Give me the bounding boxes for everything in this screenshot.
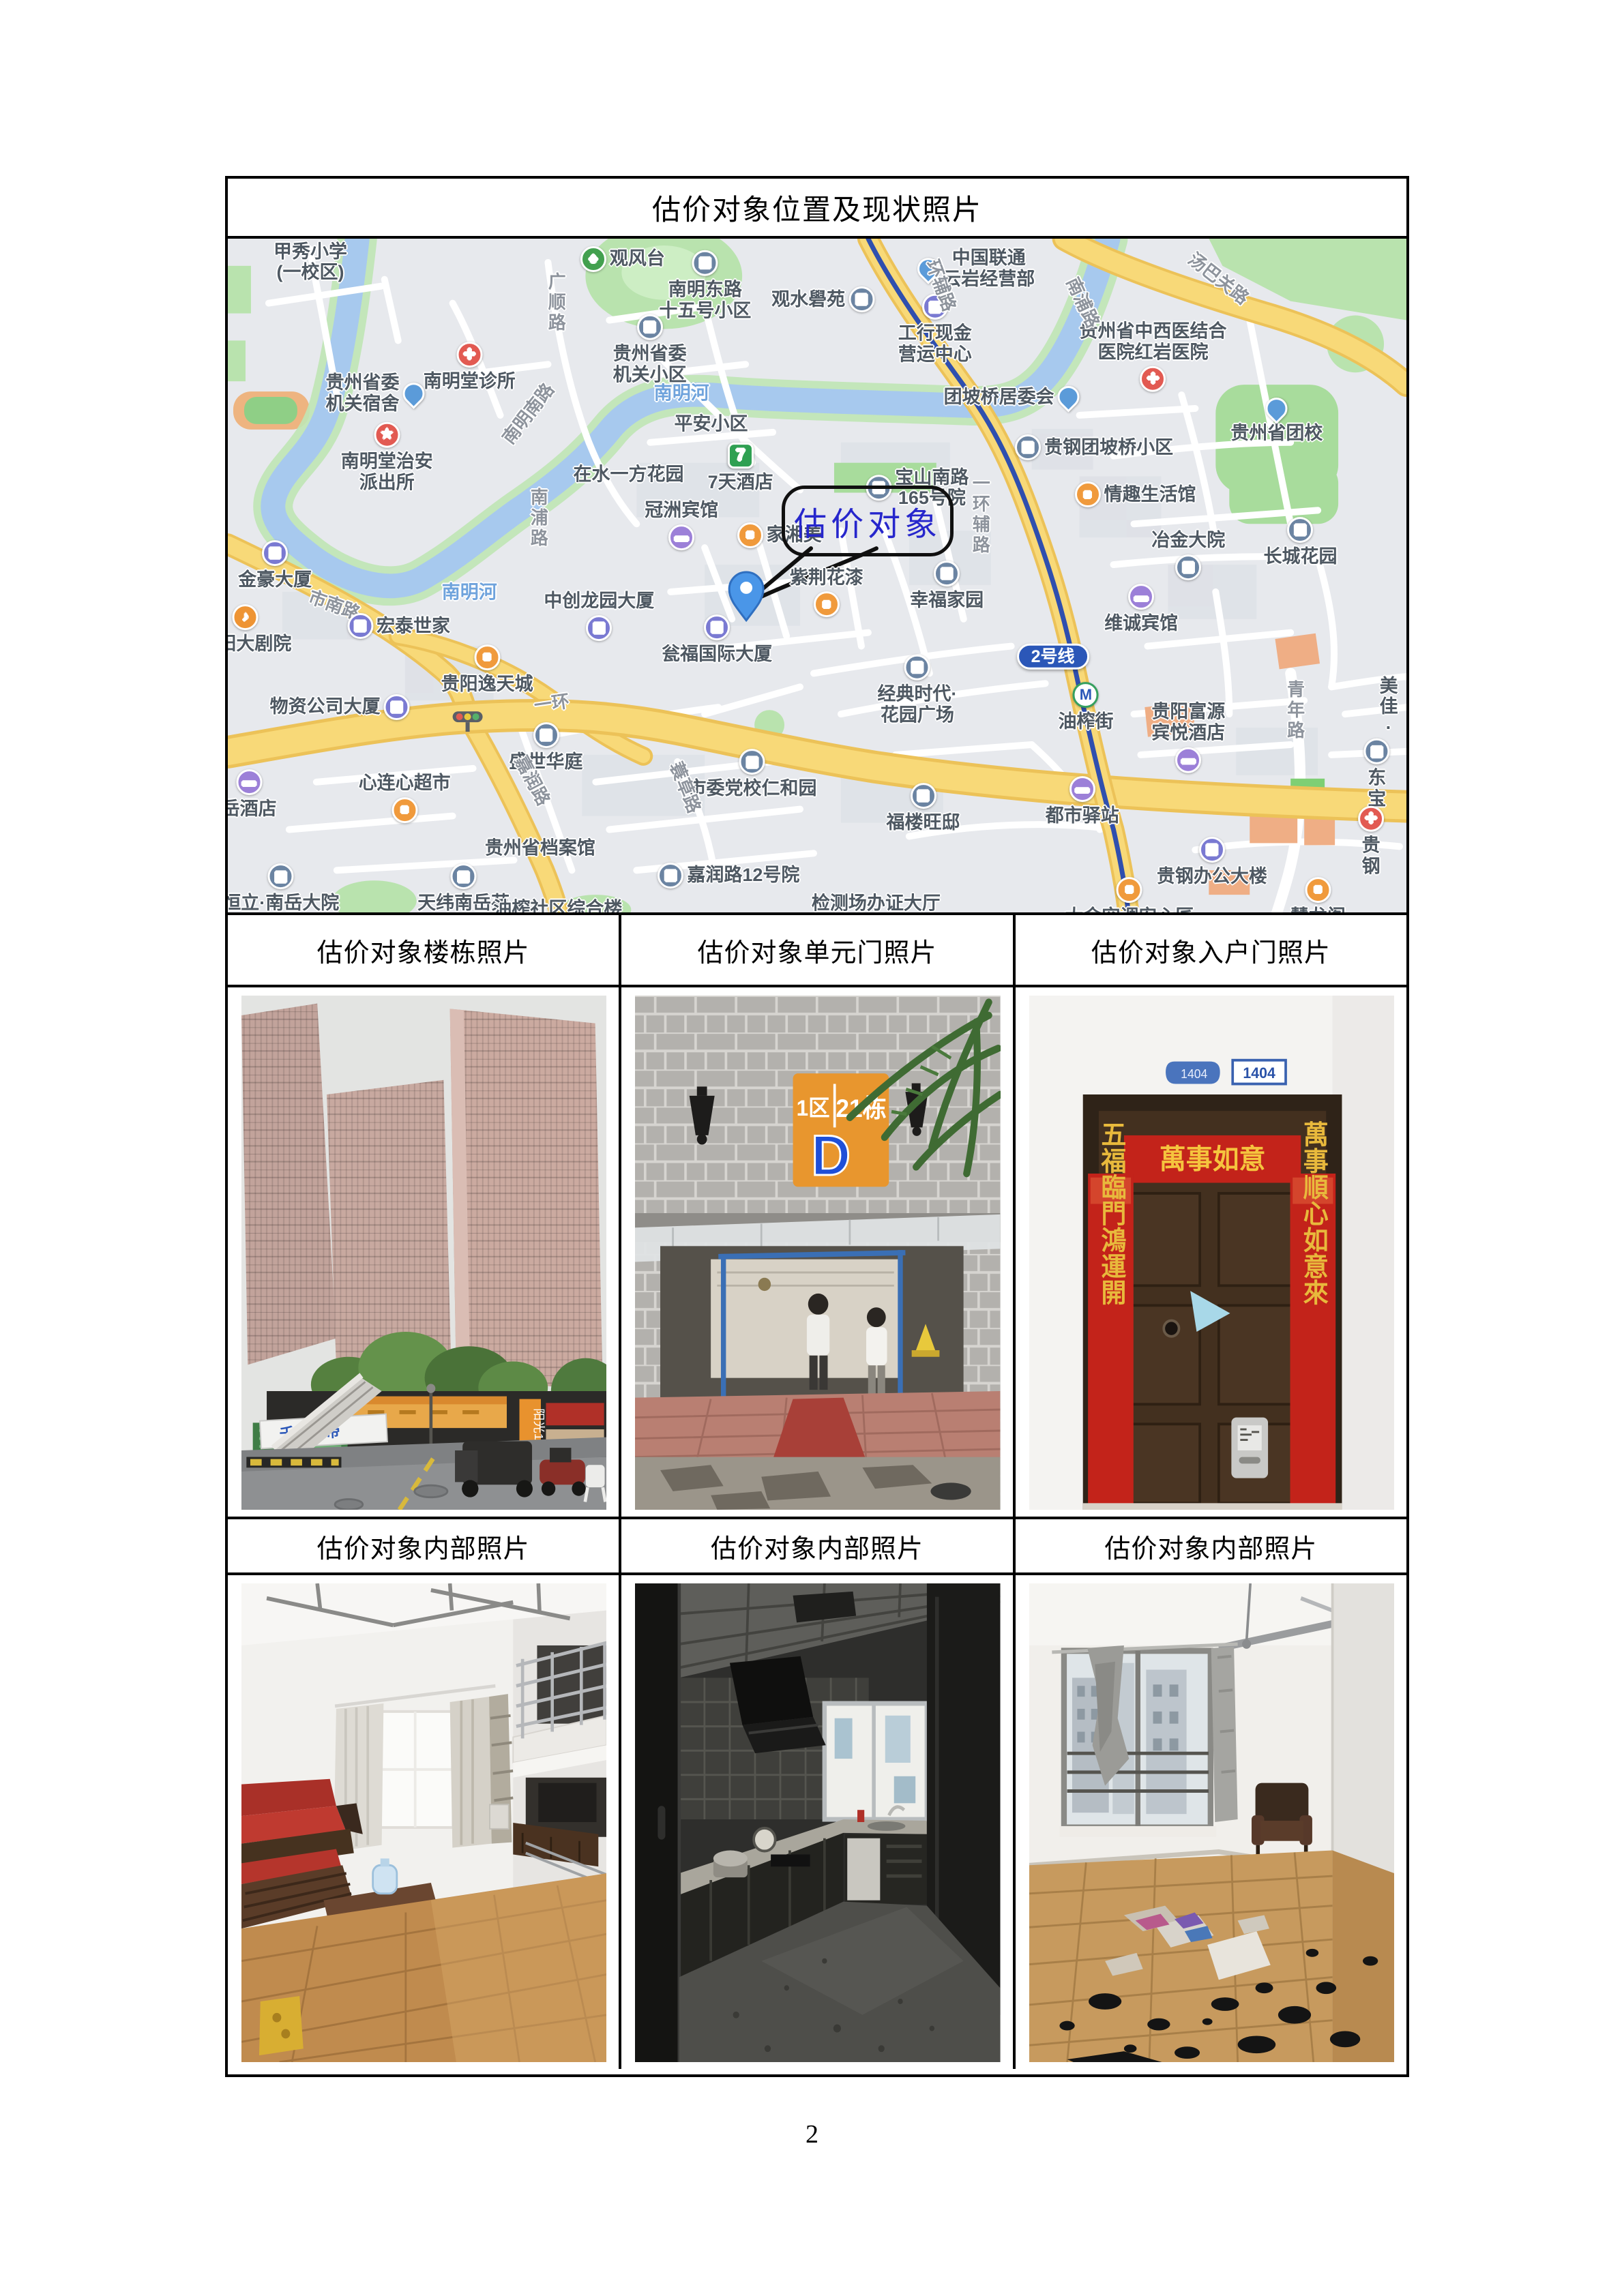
map-label-text: 南浦路 — [1062, 274, 1103, 331]
map-label: 南明河 — [654, 383, 709, 404]
target-callout-text: 估价对象 — [794, 497, 941, 545]
building-icon: ▦ — [1175, 554, 1201, 580]
target-callout: 估价对象 — [782, 486, 954, 557]
map-label-text: 南明堂治安 派出所 — [341, 451, 433, 494]
pin-icon — [1261, 393, 1292, 423]
map-label: 贵州省委 机关宿舍 — [326, 372, 425, 415]
map-label: 贵阳富源 宾悦酒店▬ — [1151, 702, 1225, 773]
couplet-left-text: 五福臨門鴻運開 — [1097, 1121, 1127, 1306]
building-icon: ▦ — [451, 864, 477, 890]
kitchen-window — [825, 1703, 927, 1819]
map-label-text: 南浦路 — [528, 488, 548, 549]
map-label: 紫荆花漆■ — [790, 567, 863, 618]
map-label-text: 恒立·南岳大院 — [228, 893, 339, 912]
map-label-text: 维诚宾馆 — [1104, 614, 1178, 635]
building-icon: ▦ — [1364, 739, 1390, 764]
map-label: ▦东宝 — [1362, 739, 1391, 810]
heater — [490, 1804, 509, 1829]
map-label: 观水礐苑▦ — [771, 286, 874, 312]
caption-interior-photo-1: 估价对象内部照片 — [228, 1519, 621, 1572]
map-label: ▦工行现金 营运中心 — [898, 294, 972, 366]
map-label-text: 工行现金 营运中心 — [898, 323, 972, 366]
hotel-icon: ▬ — [668, 524, 694, 550]
map-label-text: 大金空调安心匠 — [1065, 906, 1194, 912]
interior-photo-kitchen — [635, 1583, 1000, 2062]
shop-icon: ■ — [1075, 481, 1101, 507]
office-icon: ▦ — [704, 614, 730, 640]
plaque-right-number: 1404 — [1243, 1064, 1275, 1082]
map-label-text: 情趣生活馆 — [1104, 484, 1196, 505]
photo-cell-entry-door: 1404 1404 萬事如意 — [1016, 987, 1406, 1517]
photo-cell-interior-1 — [228, 1575, 621, 2069]
map-label: ▦南明东路 十五号小区 — [659, 250, 751, 322]
map-label: ▦恒立·南岳大院 — [228, 864, 339, 912]
interior-photo-living — [241, 1583, 606, 2062]
caption-entry-door-photo: 估价对象入户门照片 — [1016, 915, 1406, 985]
hotel-icon: ▬ — [236, 769, 262, 795]
map-label-text: 中创龙园大厦 — [544, 591, 654, 612]
map-label: 冠洲宾馆▬ — [645, 500, 718, 550]
map-label-text: 嘉润路12号院 — [687, 865, 799, 886]
map-label-text: 冶金大院 — [1151, 530, 1225, 551]
map-label: ▦幸福家园 — [910, 561, 984, 611]
photo-row-2 — [228, 1575, 1406, 2069]
building-icon: ▦ — [848, 286, 874, 312]
metro-icon: M — [1073, 682, 1099, 708]
map-label: 广顺路 — [546, 272, 566, 333]
police-icon: ★ — [374, 422, 400, 448]
map-label-text: 贵阳大剧院 — [228, 633, 291, 655]
map-label: +贵钢 — [1353, 806, 1389, 878]
map-label: ▦宏泰世家 — [347, 613, 450, 639]
map-label: 一环 — [533, 691, 571, 716]
caption-row-2: 估价对象内部照片 估价对象内部照片 估价对象内部照片 — [228, 1519, 1406, 1575]
map-label: 青年路 — [1284, 680, 1305, 741]
cart-icon: ■ — [392, 797, 417, 823]
plaque-zone-text: 1区 — [797, 1095, 830, 1120]
map-label-text: 甲秀小学 (一校区) — [274, 241, 347, 284]
map-label-text: 一环 — [533, 691, 571, 716]
shop-icon: ■ — [1305, 877, 1331, 903]
photo-table: 估价对象位置及现状照片 — [225, 176, 1409, 2077]
water-jug — [373, 1865, 397, 1894]
map-label: 南浦路 — [1062, 274, 1103, 331]
map-label-text: 美佳· — [1380, 676, 1398, 739]
page-title: 估价对象位置及现状照片 — [652, 187, 982, 228]
map-label-text: 贵钢 — [1353, 835, 1389, 878]
map-label: 心连心超市■ — [359, 773, 451, 823]
map-label-text: 贵州省委 机关小区 — [613, 344, 687, 386]
map-label: ▬都市驿站 — [1046, 776, 1119, 826]
map-label: 美佳· — [1380, 676, 1398, 739]
seven-icon: 7 — [728, 443, 754, 468]
caption-building-photo: 估价对象楼栋照片 — [228, 915, 621, 985]
map-label-text: 观风台 — [610, 248, 665, 269]
map-label-text: 瓮福国际大厦 — [662, 644, 772, 665]
map-label-text: 金豪大厦 — [238, 569, 312, 591]
map-label-text: 中国联通 云岩经营部 — [943, 248, 1035, 290]
map-label: ▦长城花园 — [1263, 517, 1337, 567]
map-label-text: 平安小区 — [674, 413, 748, 434]
map-label-text: 经典时代· 花园广场 — [877, 684, 957, 726]
map-label-text: 贵州省中西医结合 医院红岩医院 — [1079, 321, 1226, 363]
map-label: ▦瓮福国际大厦 — [662, 614, 772, 665]
office-icon: ▦ — [384, 694, 410, 720]
map-label: ■大金空调安心匠 — [1065, 877, 1194, 912]
caption-interior-photo-3: 估价对象内部照片 — [1016, 1519, 1406, 1572]
map-label-text: 检测场办证大厅 — [812, 893, 941, 912]
map-label-text: 贵州省团校 — [1230, 423, 1323, 444]
caption-row-1: 估价对象楼栋照片 估价对象单元门照片 估价对象入户门照片 — [228, 915, 1406, 987]
building-icon: ▦ — [904, 655, 930, 681]
building-icon: ▦ — [739, 749, 765, 775]
hotel-icon: ▬ — [1128, 584, 1154, 610]
map-label: 一环辅路 — [970, 474, 990, 556]
map-label-text: 贵阳富源 宾悦酒店 — [1151, 702, 1225, 744]
map-label: 汤巴关路 — [1183, 250, 1252, 309]
caption-unit-door-photo: 估价对象单元门照片 — [621, 915, 1015, 985]
door-lock — [1231, 1418, 1268, 1478]
office-icon: ▦ — [586, 615, 612, 641]
map-label: ▦贵钢团坡桥小区 — [1015, 434, 1173, 460]
map-label-text: 油榨街 — [1058, 711, 1113, 732]
map-label-text: 冠洲宾馆 — [645, 500, 718, 521]
map-label: ■贵阳逸天城 — [441, 644, 533, 695]
map-label-text: 东宝 — [1362, 768, 1391, 810]
map-label: 在水一方花园 — [574, 464, 684, 485]
map-label-text: 油榨社区综合楼 — [493, 899, 622, 912]
office-icon: ▦ — [347, 613, 373, 639]
map-label: 中创龙园大厦▦ — [544, 591, 654, 641]
yellow-stool — [259, 1996, 304, 2055]
map-label: 南浦路 — [528, 488, 548, 549]
page-number: 2 — [0, 2119, 1624, 2149]
map-label: ▦嘉润路12号院 — [658, 863, 799, 889]
photo-cell-interior-3 — [1016, 1575, 1406, 2069]
building-icon: ▦ — [268, 864, 294, 890]
map-label-text: 物资公司大厦 — [270, 696, 381, 717]
photo-cell-unit-door: 1区 21栋 D — [621, 987, 1015, 1517]
hospital-icon: + — [1358, 806, 1384, 832]
building-photo: 阳光100幼儿园 千兆宽带 — [241, 996, 606, 1510]
map-label-text: 贵钢团坡桥小区 — [1044, 437, 1173, 458]
map-label-text: 市委党校仁和园 — [688, 779, 816, 800]
building-icon: ▦ — [658, 863, 683, 889]
map-label-text: 贵州省档案馆 — [485, 838, 595, 859]
unit-door-photo: 1区 21栋 D — [635, 996, 1000, 1510]
room-window — [1059, 1651, 1216, 1837]
photo-row-1: 阳光100幼儿园 千兆宽带 — [228, 987, 1406, 1519]
building-icon: ▦ — [637, 314, 663, 340]
shop-icon: ■ — [1117, 877, 1142, 903]
plaque-left-number: 1404 — [1181, 1067, 1207, 1080]
map-label-text: 南明河 — [654, 383, 709, 404]
map-label: 77天酒店 — [708, 443, 773, 493]
map-label: ▦贵州省委 机关小区 — [613, 314, 687, 386]
plaque-unit-text: D — [812, 1124, 851, 1187]
map-label: 团坡桥居委会 — [944, 386, 1080, 408]
map-label: 贵州省中西医结合 医院红岩医院+ — [1079, 321, 1226, 393]
map-label-text: 福楼旺邸 — [887, 812, 960, 833]
map-label-text: 青年路 — [1284, 680, 1305, 741]
entry-door-photo: 1404 1404 萬事如意 — [1029, 996, 1394, 1510]
map-label: M油榨街 — [1058, 682, 1113, 732]
map-label-text: 南明堂诊所 — [424, 371, 516, 392]
location-map: 甲秀小学 (一校区)广顺路▦南明东路 十五号小区♣观风台观水礐苑▦中国联通 云岩… — [228, 239, 1406, 912]
map-row: 甲秀小学 (一校区)广顺路▦南明东路 十五号小区♣观风台观水礐苑▦中国联通 云岩… — [228, 239, 1406, 915]
peephole — [1164, 1321, 1179, 1337]
couplet-right-text: 萬事順心如意來 — [1299, 1121, 1328, 1306]
map-label-text: 紫荆花漆 — [790, 567, 863, 588]
table-title-row: 估价对象位置及现状照片 — [228, 179, 1406, 239]
map-label: ▬岳酒店 — [228, 769, 277, 820]
map-label-text: 7天酒店 — [708, 472, 773, 493]
map-label: ★南明堂治安 派出所 — [341, 422, 433, 494]
shop-icon: ■ — [814, 592, 840, 618]
office-icon: ▦ — [1199, 837, 1225, 863]
map-label-text: 广顺路 — [546, 272, 566, 333]
map-label-text: 都市驿站 — [1046, 805, 1119, 826]
park-icon: ♣ — [580, 246, 606, 272]
couplet-left: 五福臨門鴻運開 — [1088, 1121, 1134, 1510]
map-label: ♪贵阳大剧院 — [228, 604, 291, 655]
map-label-text: 2号线 — [1017, 643, 1089, 670]
map-label-text: 在水一方花园 — [574, 464, 684, 485]
map-label: 南明河 — [442, 582, 497, 603]
hospital-icon: + — [1140, 366, 1166, 392]
map-label-text: 观水礐苑 — [771, 289, 845, 310]
map-label: +南明堂诊所 — [424, 342, 516, 392]
map-label: 贵州省团校 — [1230, 398, 1323, 444]
interior-photo-room — [1029, 1583, 1394, 2062]
building-icon: ▦ — [692, 250, 718, 276]
map-labels-layer: 甲秀小学 (一校区)广顺路▦南明东路 十五号小区♣观风台观水礐苑▦中国联通 云岩… — [228, 239, 1406, 912]
map-label-text: 岳酒店 — [228, 799, 277, 820]
building-icon: ▦ — [911, 783, 936, 809]
photo-cell-interior-2 — [621, 1575, 1015, 2069]
map-label-text: 团坡桥居委会 — [944, 387, 1054, 408]
shop-icon: ■ — [474, 644, 500, 670]
map-label-text: 长城花园 — [1263, 546, 1337, 567]
map-label: ▬维诚宾馆 — [1104, 584, 1178, 635]
building-icon: ▦ — [533, 722, 559, 748]
shop-icon: ■ — [737, 522, 763, 548]
music-icon: ♪ — [233, 604, 259, 630]
map-label: 冶金大院▦ — [1151, 530, 1225, 580]
red-banner: 萬事如意 — [1124, 1135, 1301, 1183]
map-label: 物资公司大厦▦ — [270, 694, 410, 720]
building-icon: ▦ — [1287, 517, 1313, 543]
map-label: ▦福楼旺邸 — [887, 783, 960, 833]
building-icon: ▦ — [1015, 434, 1041, 460]
map-label-text: 宏泰世家 — [377, 616, 450, 637]
map-label: 贵州省档案馆 — [485, 838, 595, 859]
map-label-text: 贵州省委 机关宿舍 — [326, 372, 400, 415]
office-icon: ▦ — [262, 540, 288, 566]
hotel-icon: ▬ — [1175, 747, 1201, 773]
couplet-right: 萬事順心如意來 — [1290, 1121, 1335, 1510]
map-label-text: 一环辅路 — [970, 474, 990, 556]
map-label-text: 南明河 — [442, 582, 497, 603]
map-label: ▦金豪大厦 — [238, 540, 312, 591]
document-page: 估价对象位置及现状照片 — [0, 0, 1624, 2296]
caption-interior-photo-2: 估价对象内部照片 — [621, 1519, 1015, 1572]
map-label: ♣观风台 — [580, 246, 665, 272]
map-label-text: 贵阳逸天城 — [441, 674, 533, 695]
map-label-text: 心连心超市 — [359, 773, 451, 794]
map-label-text: 幸福家园 — [910, 590, 984, 611]
map-label: ■慧龙阁 — [1290, 877, 1346, 912]
map-label: 2号线 — [1017, 643, 1089, 670]
banner-text: 萬事如意 — [1159, 1144, 1265, 1175]
hotel-icon: ▬ — [1069, 776, 1095, 802]
map-label-text: 慧龙阁 — [1290, 906, 1346, 912]
map-label: 油榨社区综合楼 — [493, 899, 622, 912]
map-label: ■情趣生活馆 — [1075, 481, 1196, 507]
building-icon: ▦ — [934, 561, 960, 586]
map-label: 平安小区 — [674, 413, 748, 434]
map-label-text: 汤巴关路 — [1183, 250, 1252, 309]
map-label: ▦市委党校仁和园 — [688, 749, 816, 800]
map-label: 检测场办证大厅 — [812, 893, 941, 912]
photo-cell-building: 阳光100幼儿园 千兆宽带 — [228, 987, 621, 1517]
map-label: 甲秀小学 (一校区) — [274, 241, 347, 284]
map-label: ▦经典时代· 花园广场 — [877, 655, 957, 726]
hospital-icon: + — [456, 342, 482, 368]
pin-icon — [398, 378, 429, 409]
